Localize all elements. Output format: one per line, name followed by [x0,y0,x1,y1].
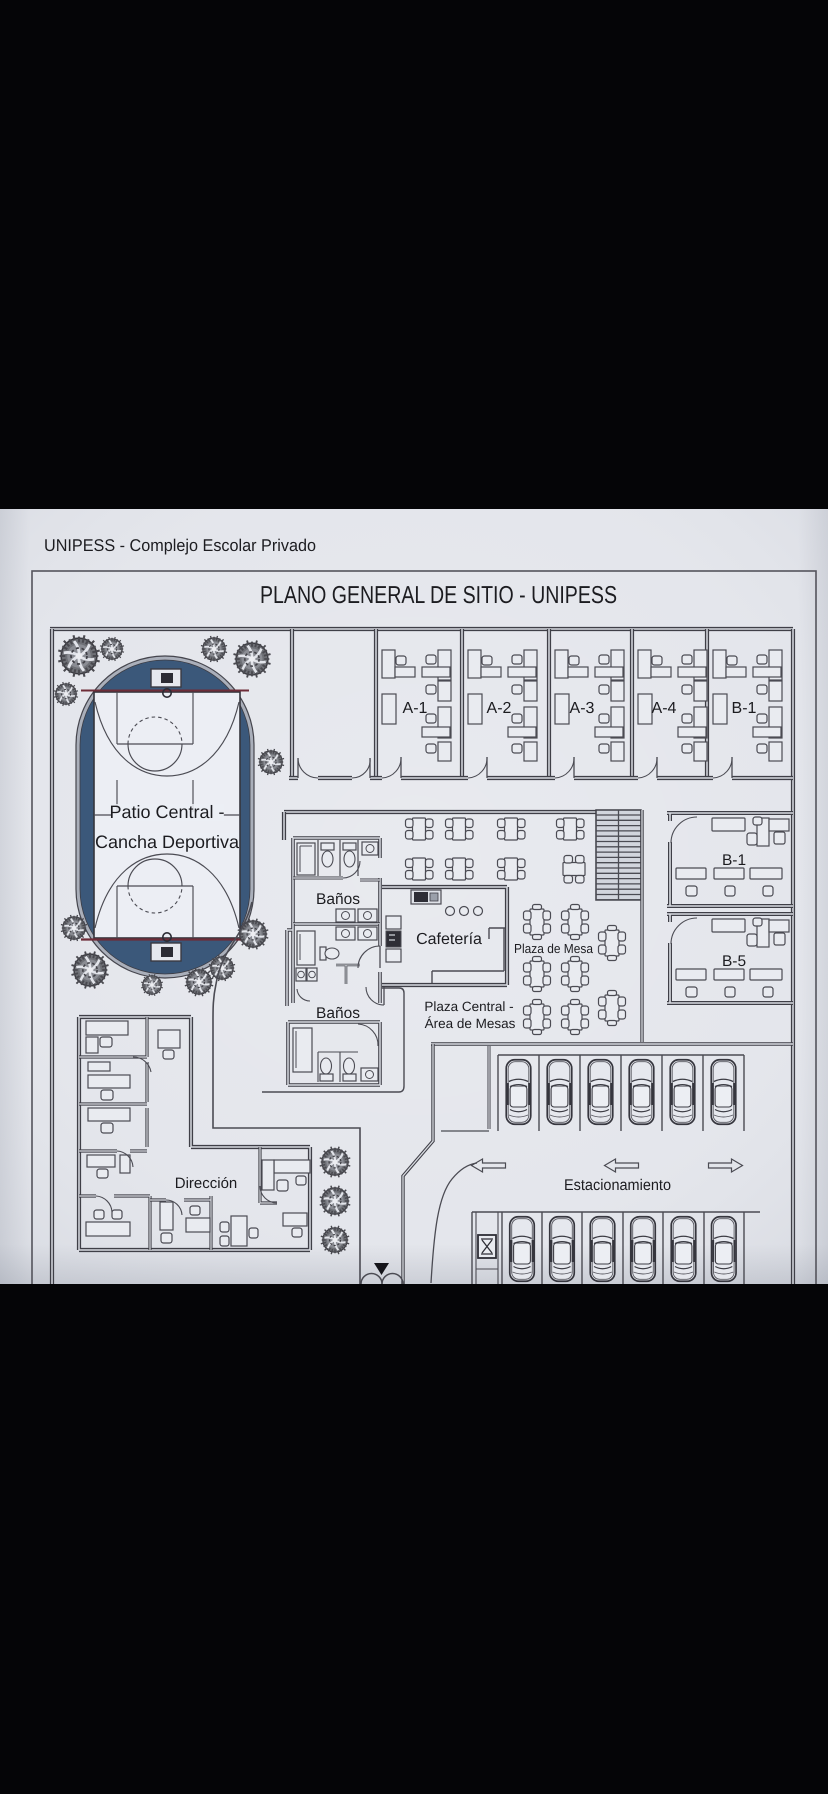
svg-text:Baños: Baños [316,891,360,908]
svg-text:Plaza Central -: Plaza Central - [424,999,513,1014]
svg-text:Área de Mesas: Área de Mesas [425,1016,516,1031]
svg-text:B-1: B-1 [732,700,757,717]
svg-text:A-2: A-2 [487,700,512,717]
svg-text:Cafetería: Cafetería [416,931,482,948]
svg-text:Baños: Baños [316,1005,360,1022]
svg-text:Cancha Deportiva: Cancha Deportiva [95,832,240,852]
svg-text:A-1: A-1 [403,700,428,717]
svg-text:PLANO GENERAL DE SITIO - UNIPE: PLANO GENERAL DE SITIO - UNIPESS [260,582,617,609]
svg-text:Estacionamiento: Estacionamiento [564,1177,671,1194]
svg-text:Plaza de Mesa: Plaza de Mesa [514,941,594,956]
svg-text:A-3: A-3 [570,700,595,717]
svg-text:A-4: A-4 [652,700,677,717]
svg-text:UNIPESS - Complejo Escolar Pri: UNIPESS - Complejo Escolar Privado [44,536,316,555]
svg-text:B-5: B-5 [722,953,746,970]
svg-text:Patio Central -: Patio Central - [109,802,224,822]
svg-text:B-1: B-1 [722,852,746,869]
svg-text:Dirección: Dirección [175,1175,238,1192]
